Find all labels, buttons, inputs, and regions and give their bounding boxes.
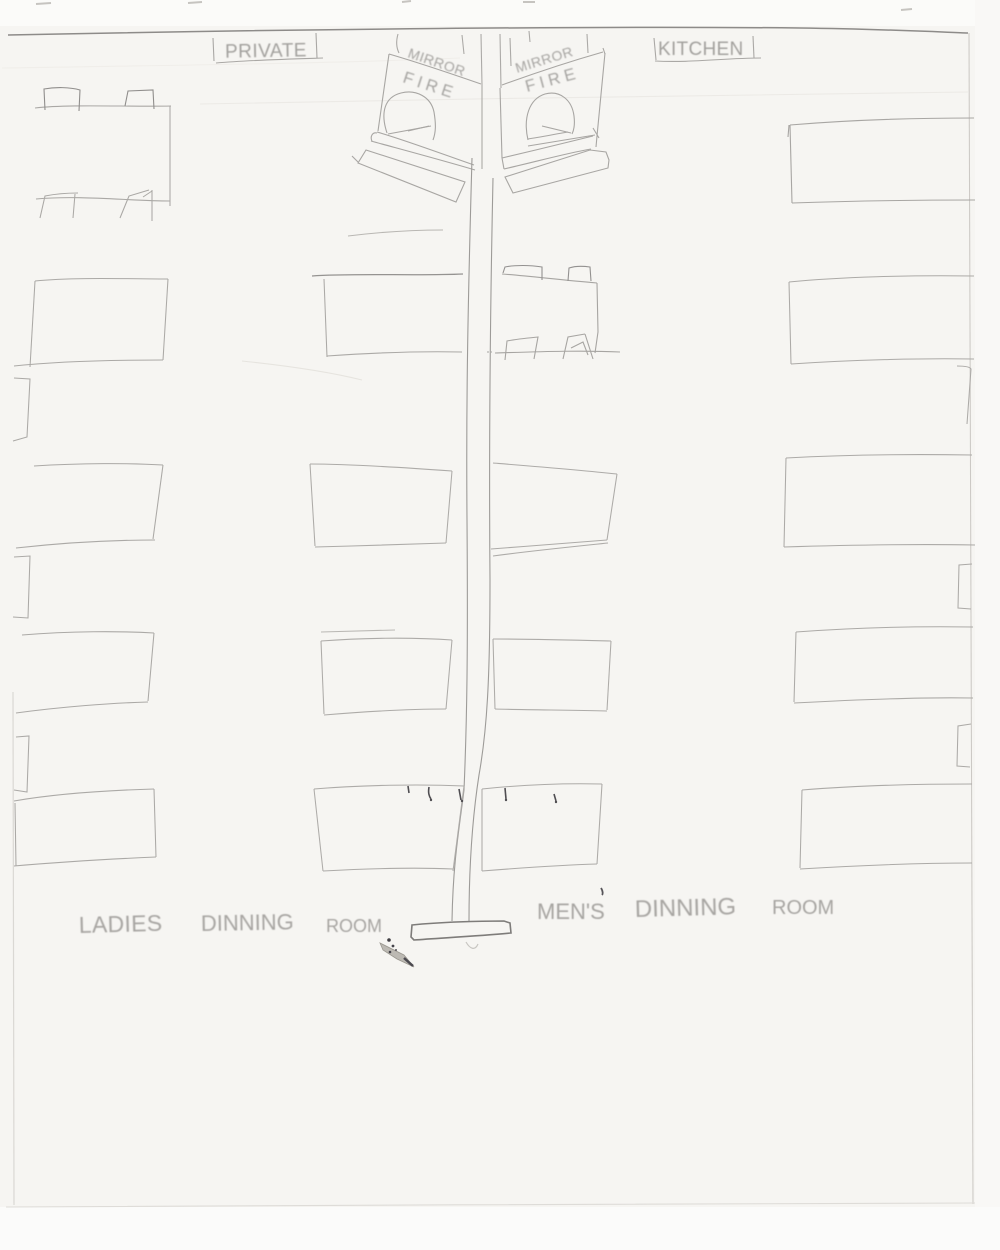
svg-text:KITCHEN: KITCHEN [658, 39, 744, 60]
svg-text:LADIES: LADIES [78, 910, 162, 938]
svg-text:MEN'S: MEN'S [537, 899, 605, 924]
svg-text:DINNING: DINNING [634, 893, 736, 923]
svg-text:PRIVATE: PRIVATE [225, 40, 307, 62]
svg-text:ROOM: ROOM [772, 897, 834, 919]
svg-text:ROOM: ROOM [326, 916, 382, 936]
svg-text:DINNING: DINNING [201, 909, 294, 936]
